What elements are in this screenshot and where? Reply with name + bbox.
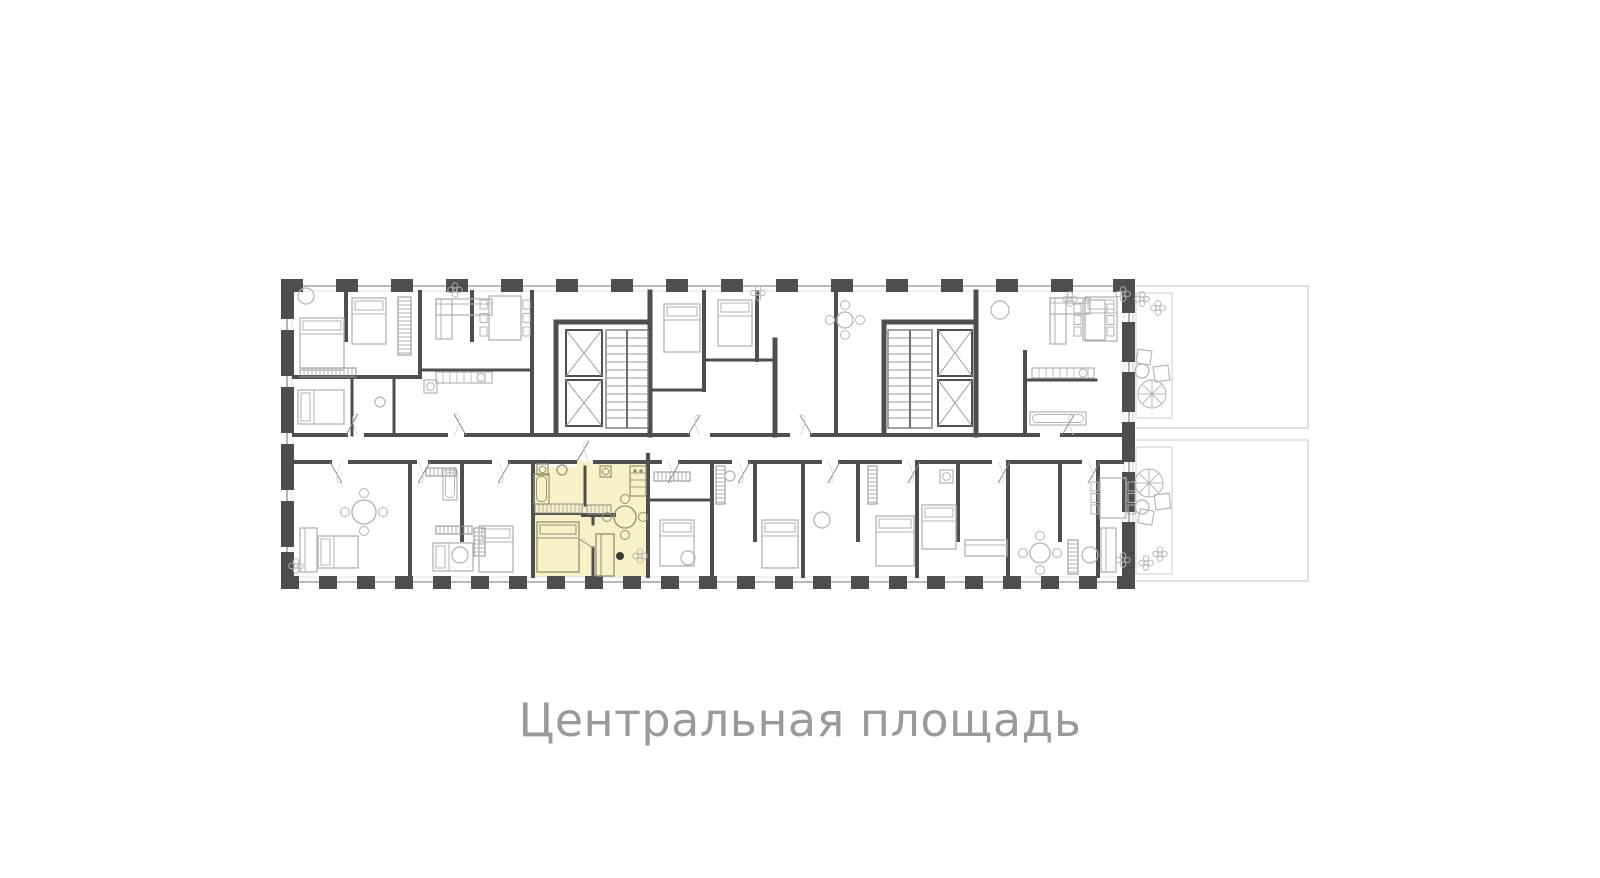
interior-walls bbox=[294, 292, 1122, 576]
floorplan-page: Центральная площадь bbox=[0, 0, 1600, 878]
selected-apartment[interactable] bbox=[533, 461, 648, 577]
terrace-area bbox=[1133, 286, 1308, 581]
floor-caption: Центральная площадь bbox=[0, 694, 1600, 746]
